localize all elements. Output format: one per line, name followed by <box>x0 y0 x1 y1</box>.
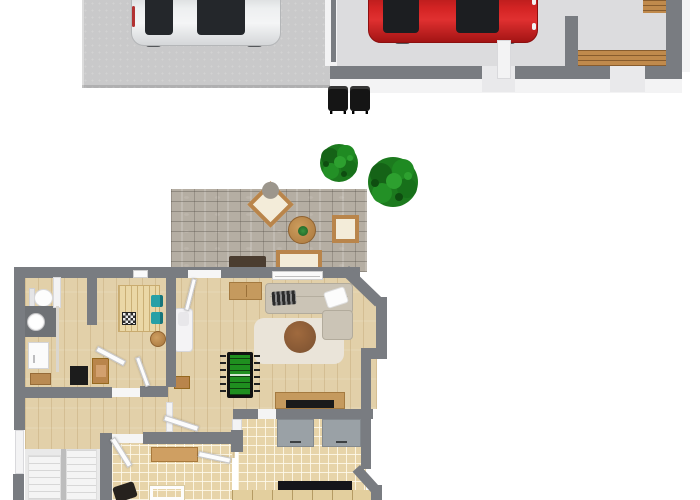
tree-icon <box>363 152 423 212</box>
east-wall <box>376 297 387 355</box>
mid-wall-east <box>140 386 168 397</box>
dining-living-wall <box>166 267 176 387</box>
sectional-sofa-chaise <box>322 310 353 340</box>
chair-cushion <box>258 178 282 202</box>
mid-wall-west <box>15 387 112 398</box>
sink <box>27 313 45 331</box>
kitchen-north-wall-east <box>276 409 373 419</box>
kitchen-base-cabinets <box>232 490 373 500</box>
patio-door-opening <box>188 270 221 278</box>
round-stool <box>150 331 166 347</box>
toilet <box>29 288 53 308</box>
window-sill <box>133 270 148 278</box>
garage-wall-stub <box>497 40 511 79</box>
desk-chair <box>96 365 106 377</box>
trash-bin <box>328 86 348 111</box>
wooden-desk <box>92 358 109 384</box>
daybed-cushion <box>178 312 189 326</box>
bathroom-wall-stub <box>53 277 61 308</box>
west-wall <box>14 267 25 430</box>
media-console <box>275 392 345 409</box>
kitchen-north-wall-west <box>233 409 258 419</box>
red-car <box>368 0 538 43</box>
garage-east-wall-face <box>682 0 690 72</box>
silver-car <box>131 0 281 46</box>
foosball-table <box>227 352 253 398</box>
west-railing <box>15 430 24 474</box>
striped-pillow <box>272 290 297 306</box>
sliding-glass-door <box>272 271 323 280</box>
storage-shelf <box>151 447 198 462</box>
mid-door-threshold <box>112 388 140 397</box>
entry-wall-stub <box>565 16 578 70</box>
headlight <box>532 23 536 30</box>
chessboard <box>122 312 136 325</box>
floorplan-render <box>0 0 700 500</box>
foosball-field <box>230 355 250 395</box>
teal-chair <box>151 295 163 307</box>
west-wall-lower <box>13 474 24 500</box>
garage-door-opening <box>610 66 645 92</box>
kitchen-door-threshold <box>258 409 276 419</box>
bathroom-vanity <box>24 306 57 337</box>
bathroom-divider <box>56 306 59 372</box>
wooden-deck-piece <box>643 0 666 13</box>
tree-icon <box>316 140 362 186</box>
stair-flight <box>66 449 97 500</box>
headlight <box>532 0 536 5</box>
foosball-handles <box>254 355 260 395</box>
windshield <box>456 0 499 33</box>
white-table-frame <box>150 486 184 500</box>
bathroom-bench <box>30 373 51 385</box>
rear-window <box>383 0 419 33</box>
wooden-stool <box>174 376 190 389</box>
east-wall-bottom <box>371 485 382 500</box>
rear-window <box>145 0 174 35</box>
sideboard <box>229 282 262 300</box>
black-cabinet <box>70 366 88 385</box>
taillight <box>132 6 135 27</box>
patio-square-chair <box>332 215 359 243</box>
tv <box>286 400 334 408</box>
kitchen-cabinet <box>277 419 314 447</box>
glass-line <box>275 276 320 277</box>
patio-round-table <box>288 216 316 244</box>
hall-south-wall <box>143 432 231 444</box>
drawer-line <box>246 285 247 297</box>
hall-south-wall-vertical <box>100 433 112 500</box>
windshield <box>197 0 245 35</box>
white-daybed <box>174 308 193 352</box>
hall-dining-wall <box>87 267 97 325</box>
washer-handle <box>33 355 35 363</box>
toilet-bowl <box>34 289 53 307</box>
stair-divider <box>61 449 66 500</box>
storage-east-wall <box>231 430 243 452</box>
plant-icon <box>298 226 308 236</box>
round-ottoman <box>284 321 316 353</box>
washing-machine <box>28 342 49 369</box>
foosball-handles <box>220 355 226 395</box>
stair-flight <box>28 455 61 500</box>
trash-bin <box>350 86 370 111</box>
kitchen-cabinet <box>322 419 361 447</box>
teal-chair <box>151 312 163 324</box>
garage-west-wall-cap <box>331 0 336 62</box>
